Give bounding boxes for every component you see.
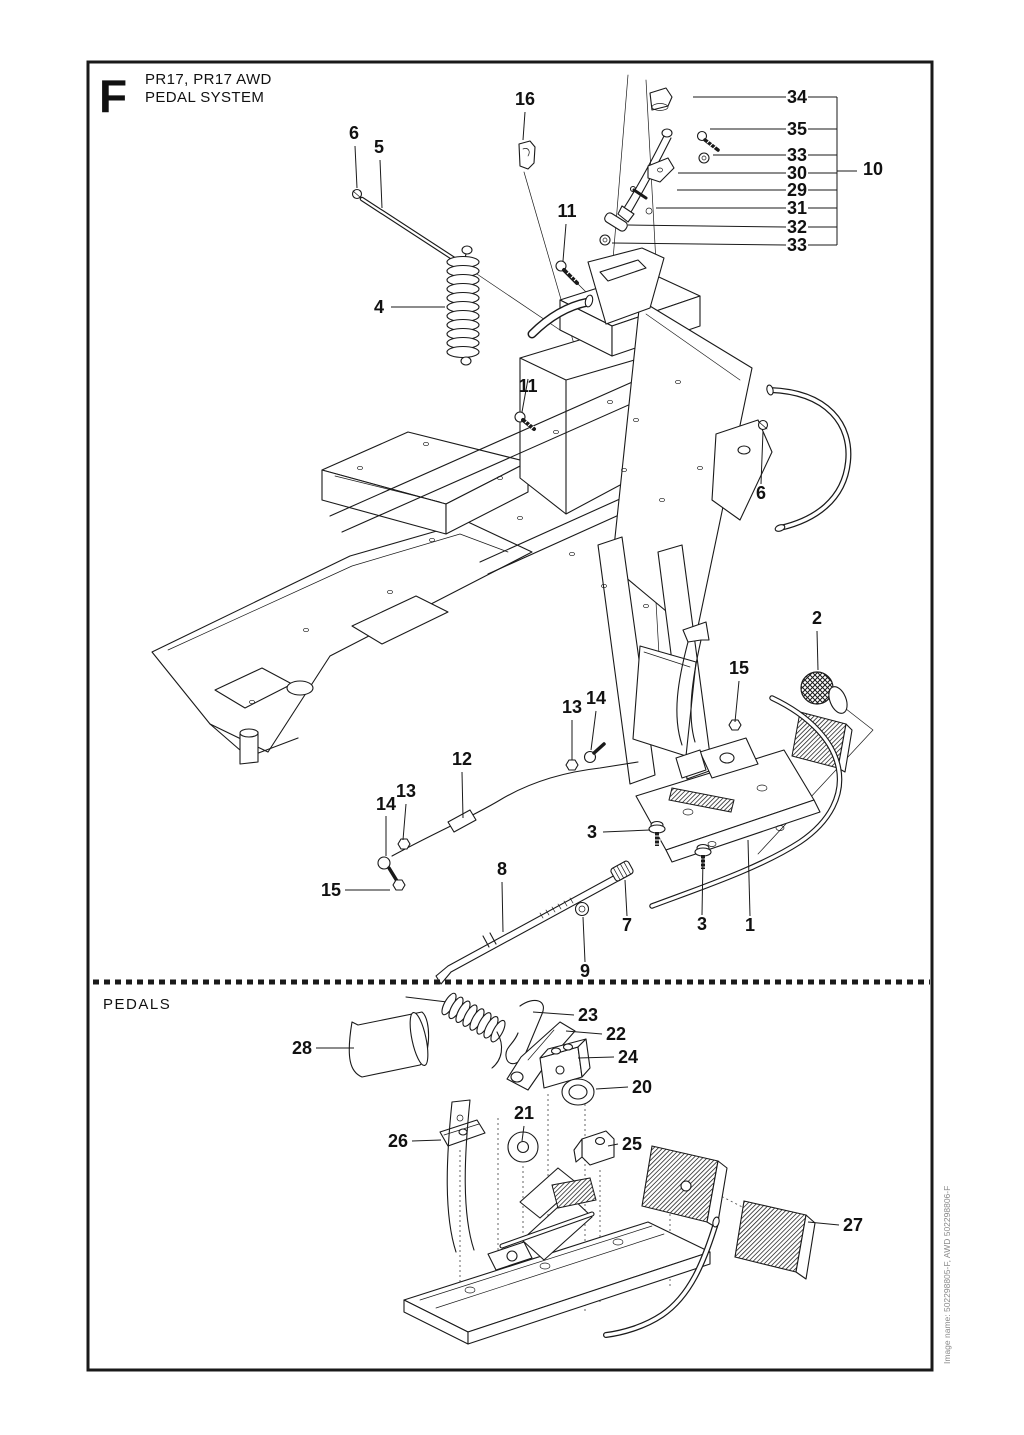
callout-12: 12 [452,749,472,769]
part-7-coupler [610,860,634,882]
callout-10: 10 [863,159,883,179]
callout-4: 4 [374,297,384,317]
page-title-line1: PR17, PR17 AWD [145,71,272,88]
callout-3b: 3 [697,914,707,934]
callout-33: 33 [787,145,807,165]
callout-2: 2 [812,608,822,628]
callout-21: 21 [514,1103,534,1123]
callout-11: 11 [557,201,576,221]
diagram-canvas: F PR17, PR17 AWD PEDAL SYSTEM [0,0,1024,1435]
callout-28: 28 [292,1038,312,1058]
callout-3: 3 [587,822,597,842]
callout-23: 23 [578,1005,598,1025]
part-16-clip [519,141,535,169]
callout-7: 7 [622,915,632,935]
part-11-screw-top [556,261,577,283]
part-4-spring [447,246,479,365]
pedals-section-label: PEDALS [103,996,171,1013]
part-25-clip [574,1131,614,1165]
callout-1: 1 [745,915,755,935]
figure-letter: F [99,70,127,122]
pedal-knob-2 [801,672,833,704]
part-9-nut [576,903,589,916]
callout-15b: 15 [321,880,341,900]
image-name-note: Image name: 502298805-F, AWD 502298806-F [942,1186,952,1364]
part-5-rod [353,190,469,269]
callout-9: 9 [580,961,590,981]
part-15-nut-left [393,880,405,890]
part-26-pad [440,1120,485,1146]
callout-6: 6 [349,123,359,143]
callout-8: 8 [497,859,507,879]
callout-6b: 6 [756,483,766,503]
part-28-sleeve [349,1011,431,1077]
callout-14b: 14 [376,794,396,814]
right-tube [759,384,849,532]
callout-25: 25 [622,1134,642,1154]
part-13-nut-left [398,839,410,849]
callout-14: 14 [586,688,606,708]
callout-11b: 11 [518,376,537,396]
callout-24: 24 [618,1047,638,1067]
page-title-line2: PEDAL SYSTEM [145,89,264,106]
callout-13b: 13 [396,781,416,801]
callout-32: 32 [787,217,807,237]
callout-27: 27 [843,1215,863,1235]
callout-34: 34 [787,87,807,107]
part-8-rod [436,860,634,984]
callout-22: 22 [606,1024,626,1044]
callout-31: 31 [787,198,807,218]
part-13-nut-right [566,760,578,770]
part-20-ring [562,1079,594,1105]
callout-5: 5 [374,137,384,157]
callout-29: 29 [787,180,807,200]
callout-35: 35 [787,119,807,139]
parts-cluster-10 [600,88,718,245]
callout-33b: 33 [787,235,807,255]
callout-13: 13 [562,697,582,717]
callout-15: 15 [729,658,749,678]
callout-26: 26 [388,1131,408,1151]
parts-diagram-page: F PR17, PR17 AWD PEDAL SYSTEM [0,0,1024,1435]
callout-16: 16 [515,89,535,109]
callout-20: 20 [632,1077,652,1097]
